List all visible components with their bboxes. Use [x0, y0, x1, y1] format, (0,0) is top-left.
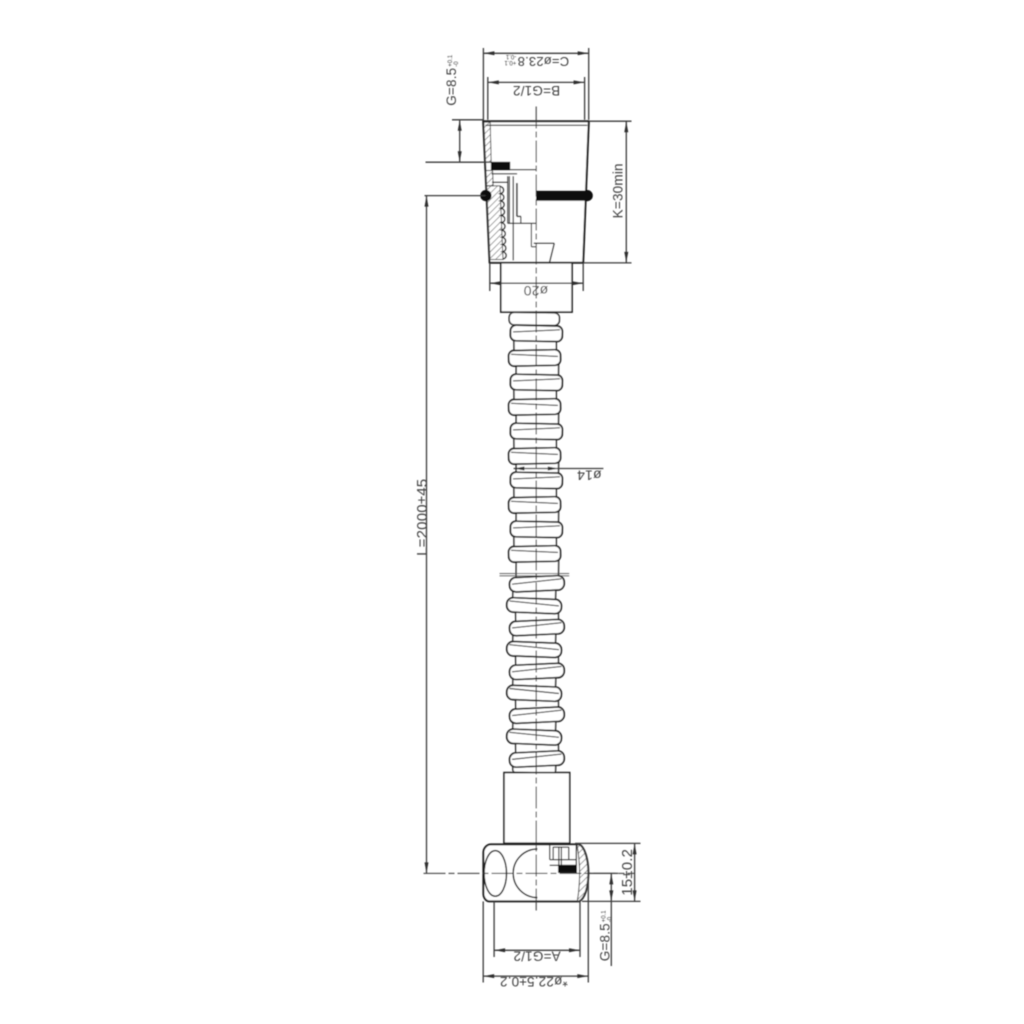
svg-text:-0.1: -0.1 [505, 53, 516, 59]
svg-text:B=G1/2: B=G1/2 [513, 83, 560, 98]
svg-text:L=2000±45: L=2000±45 [414, 479, 431, 556]
svg-text:*ø22.5±0.2: *ø22.5±0.2 [500, 974, 568, 989]
svg-text:15±0.2: 15±0.2 [619, 849, 636, 896]
svg-text:C=ø23.8: C=ø23.8 [517, 54, 569, 69]
svg-text:G=8.5: G=8.5 [597, 923, 612, 961]
svg-text:G=8.5: G=8.5 [444, 68, 459, 106]
svg-text:ø20: ø20 [524, 283, 549, 299]
svg-text:-0: -0 [454, 61, 460, 67]
svg-text:-0: -0 [607, 916, 613, 922]
svg-text:A=G1/2: A=G1/2 [513, 949, 560, 964]
svg-text:ø14: ø14 [577, 468, 602, 484]
svg-text:K=30min: K=30min [610, 163, 625, 218]
